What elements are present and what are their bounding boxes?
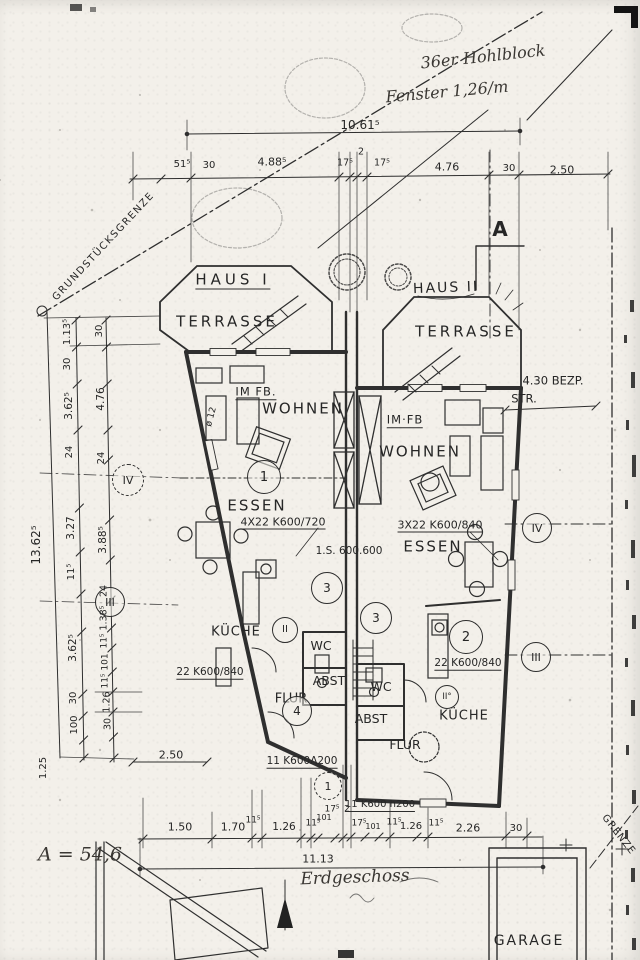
dim-top-6: 4.76 xyxy=(435,162,460,173)
haus1-terrasse: TERRASSE xyxy=(176,315,278,330)
dim-bot-0: 1.50 xyxy=(168,822,193,833)
floor-plan-scan: 36er Hohlblock Fenster 1,26/m A = 54,6 E… xyxy=(0,0,640,960)
dim-l2-7: 101 xyxy=(102,653,111,670)
note-floor: Erdgeschoss xyxy=(300,868,410,889)
dim-bot-11: 1.26 xyxy=(400,822,422,832)
dim-bot-2: 11⁵ xyxy=(245,817,260,826)
haus2-lintel-note: 22 K600/840 xyxy=(434,658,501,671)
axis-marker-right-iv: IV xyxy=(522,513,552,543)
haus1-lintel-note: 22 K600/840 xyxy=(176,667,243,680)
dim-l1-6: 3.62⁵ xyxy=(68,634,79,662)
note-area: A = 54,6 xyxy=(38,846,122,865)
dim-bot-1: 1.70 xyxy=(221,822,246,833)
dim-bot-7: 2 xyxy=(344,806,350,815)
haus2-door-note: 11 K600 h200 xyxy=(345,800,415,812)
dim-l2-9: 1.26 xyxy=(102,691,112,712)
haus2-kueche: KÜCHE xyxy=(439,710,489,723)
dim-l1-0: 1.13⁵ xyxy=(63,319,73,345)
dim-top-1: 30 xyxy=(203,161,216,171)
axis-marker-right-iii: III xyxy=(521,642,551,672)
haus1-abst: ABST xyxy=(313,675,345,688)
haus2-wc: WC xyxy=(370,681,391,694)
dim-bottom-total: 11.13 xyxy=(302,854,334,865)
marker-haus2-ii: II° xyxy=(435,685,459,709)
dim-l2-3: 3.88⁵ xyxy=(98,526,109,554)
dim-bot-9: 101 xyxy=(365,823,380,831)
haus1-wc: WC xyxy=(310,640,331,653)
haus1-beam-note: 4X22 K600/720 xyxy=(241,517,326,530)
dim-top-8: 2.50 xyxy=(550,165,575,176)
dim-bot-12: 11⁵ xyxy=(428,820,443,829)
haus1-wohnen: WOHNEN xyxy=(262,402,344,417)
haus2-essen: ESSEN xyxy=(403,540,462,555)
dim-bot-13: 2.26 xyxy=(456,823,481,834)
dim-l1-7: 30 xyxy=(69,692,79,705)
haus1-door-note: 11 K600Λ200 xyxy=(267,756,338,769)
dim-l1-5: 11⁵ xyxy=(67,564,77,581)
haus2-wohnen: WOHNEN xyxy=(379,445,461,460)
dim-top-total: 10.61⁵ xyxy=(340,119,379,131)
dim-l2-6: 11⁵ xyxy=(101,633,110,648)
haus2-abst: ABST xyxy=(355,713,387,726)
haus1-im-fb: IM FB. xyxy=(235,386,276,400)
marker-haus2-1: 1 xyxy=(314,772,342,800)
haus2-flur: FLUR xyxy=(389,739,420,752)
haus2-stair-note: 1.S. 600.600 xyxy=(316,546,383,557)
haus2-title: HAUS II xyxy=(413,280,479,296)
marker-haus2-2: 2 xyxy=(449,620,483,654)
haus1-essen: ESSEN xyxy=(227,499,286,514)
axis-marker-left-iv: IV xyxy=(112,464,144,496)
dim-l2-4: 24 xyxy=(99,585,109,597)
dim-top-5: 17⁵ xyxy=(374,158,390,168)
dim-l1-4: 3.27 xyxy=(66,516,77,539)
dim-l2-5: 1.38⁵ xyxy=(99,606,109,631)
dim-l2-0: 30 xyxy=(95,325,105,338)
dim-bot-5: 101 xyxy=(316,814,331,822)
dim-l2-2: 24 xyxy=(97,452,107,465)
dim-l1-9: 1.25 xyxy=(39,757,49,779)
dim-top-0: 51⁵ xyxy=(174,160,191,170)
haus2-beam-note: 3X22 K600/840 xyxy=(398,520,483,533)
street-note: 4.30 BEZP. xyxy=(522,375,583,387)
dim-l2-10: 30 xyxy=(103,718,113,730)
dim-left-extra: 2.50 xyxy=(159,750,184,761)
dim-top-4: 2 xyxy=(358,147,364,157)
dim-top-3: 17⁵ xyxy=(337,158,353,168)
dim-top-7: 30 xyxy=(503,164,516,174)
dim-left-total: 13.62⁵ xyxy=(30,525,42,564)
marker-haus1-ii: II xyxy=(272,617,298,643)
dim-bot-8: 17⁵ xyxy=(351,820,366,829)
haus1-title: HAUS I xyxy=(195,273,270,290)
dim-l1-3: 24 xyxy=(65,446,75,459)
dim-bot-3: 1.26 xyxy=(272,822,295,833)
dim-l2-1: 4.76 xyxy=(96,387,107,410)
dim-top-2: 4.88⁵ xyxy=(258,157,287,168)
dim-l1-8: 100 xyxy=(70,715,80,734)
haus2-terrasse: TERRASSE xyxy=(415,325,517,340)
haus2-im-fb: IM·FB xyxy=(387,414,423,428)
dim-bot-14: 30 xyxy=(510,824,523,834)
marker-haus1-4: 4 xyxy=(282,696,312,726)
dim-l2-8: 11⁵ xyxy=(102,673,111,688)
marker-haus1-1: 1 xyxy=(247,460,281,494)
marker-haus2-3: 3 xyxy=(360,602,392,634)
garage-label: GARAGE xyxy=(494,934,565,948)
section-marker: A xyxy=(492,219,507,239)
haus1-kueche: KÜCHE xyxy=(211,626,261,639)
street-note-2: STR. xyxy=(511,393,537,405)
marker-haus1-3: 3 xyxy=(311,572,343,604)
dim-bot-6: 17⁵ xyxy=(324,806,339,815)
dim-l1-2: 3.62⁵ xyxy=(64,392,75,420)
dim-l1-1: 30 xyxy=(63,358,73,371)
